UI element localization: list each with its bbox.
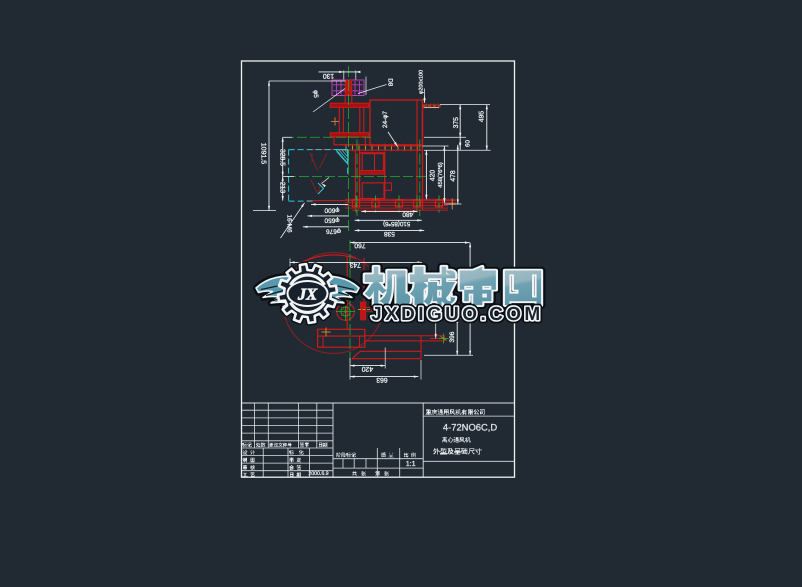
svg-text:510(85*6): 510(85*6): [383, 220, 410, 227]
svg-text:JX: JX: [297, 285, 318, 304]
svg-text:φ676: φ676: [326, 228, 341, 235]
svg-text:420: 420: [362, 365, 374, 372]
svg-text:φ600: φ600: [324, 206, 339, 213]
svg-text:495: 495: [478, 111, 485, 123]
svg-text:60: 60: [465, 140, 472, 147]
svg-text:24-φ7: 24-φ7: [382, 111, 389, 128]
svg-text:420: 420: [429, 170, 436, 182]
svg-text:663: 663: [376, 376, 388, 383]
svg-text:458(76*6): 458(76*6): [437, 162, 444, 188]
svg-text:213: 213: [279, 182, 286, 194]
svg-text:D8: D8: [387, 78, 394, 86]
svg-text:743: 743: [349, 261, 361, 268]
svg-text:130: 130: [323, 72, 335, 79]
svg-text:328.5: 328.5: [279, 149, 286, 166]
svg-text:2000.6.9: 2000.6.9: [308, 471, 328, 477]
svg-text:760: 760: [354, 242, 366, 249]
svg-text:375: 375: [453, 117, 460, 129]
svg-text:16-M6: 16-M6: [286, 214, 293, 233]
svg-text:1:1: 1:1: [406, 459, 416, 468]
svg-text:538: 538: [384, 230, 395, 237]
svg-text:4-72NO6C,D: 4-72NO6C,D: [443, 421, 497, 432]
svg-text:φ5: φ5: [312, 90, 319, 98]
svg-text:478: 478: [450, 170, 457, 182]
svg-text:1091.5: 1091.5: [259, 143, 266, 165]
svg-text:JXDIGUO.COM: JXDIGUO.COM: [371, 304, 544, 325]
svg-text:φ200x100: φ200x100: [419, 70, 425, 94]
svg-text:480: 480: [402, 211, 413, 218]
svg-text:φ650: φ650: [324, 217, 339, 224]
svg-text:396: 396: [449, 331, 456, 342]
